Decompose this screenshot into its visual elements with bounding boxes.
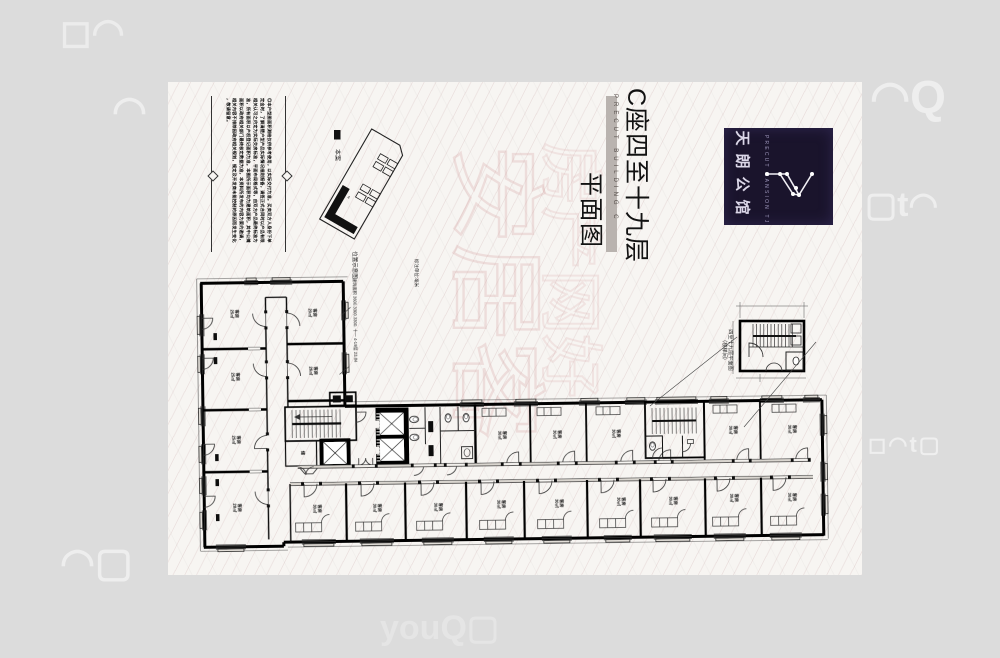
svg-text:26㎡: 26㎡ bbox=[308, 366, 314, 376]
svg-text:30㎡: 30㎡ bbox=[433, 503, 439, 513]
svg-text:30㎡: 30㎡ bbox=[312, 504, 318, 514]
svg-text:30㎡: 30㎡ bbox=[496, 500, 502, 510]
svg-text:30㎡: 30㎡ bbox=[729, 493, 735, 503]
svg-text:30㎡: 30㎡ bbox=[616, 497, 622, 507]
svg-text:30㎡: 30㎡ bbox=[611, 429, 617, 439]
svg-text:30㎡: 30㎡ bbox=[787, 425, 793, 435]
svg-text:30㎡: 30㎡ bbox=[372, 503, 378, 513]
svg-text:30㎡: 30㎡ bbox=[497, 431, 503, 441]
svg-text:四至十九层平面图: 四至十九层平面图 bbox=[727, 329, 735, 371]
svg-text:（楼梯间）: （楼梯间） bbox=[721, 337, 729, 363]
svg-text:30㎡: 30㎡ bbox=[554, 499, 560, 509]
svg-text:位置示意图: 位置示意图 bbox=[351, 251, 359, 279]
svg-text:25㎡: 25㎡ bbox=[231, 435, 237, 445]
svg-text:28㎡: 28㎡ bbox=[232, 503, 238, 513]
svg-text:30㎡: 30㎡ bbox=[552, 430, 558, 440]
svg-text:4: 4 bbox=[346, 194, 351, 200]
svg-text:储: 储 bbox=[300, 450, 307, 456]
svg-text:标注单位:毫米: 标注单位:毫米 bbox=[413, 259, 420, 288]
svg-text:本案: 本案 bbox=[334, 149, 342, 161]
svg-text:建筑面积 3600.3300.3300. 十一 4-19层: 建筑面积 3600.3300.3300. 十一 4-19层 23.84 bbox=[351, 278, 359, 363]
svg-text:25㎡: 25㎡ bbox=[230, 309, 236, 319]
svg-text:25㎡: 25㎡ bbox=[230, 372, 236, 382]
svg-text:30㎡: 30㎡ bbox=[668, 496, 674, 506]
svg-text:20㎡: 20㎡ bbox=[308, 308, 314, 318]
svg-text:30㎡: 30㎡ bbox=[728, 425, 734, 435]
svg-text:30㎡: 30㎡ bbox=[787, 493, 793, 503]
